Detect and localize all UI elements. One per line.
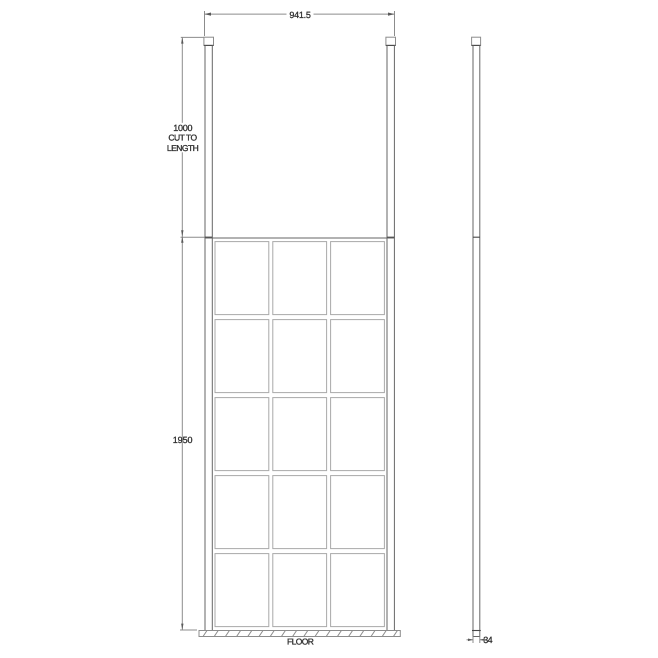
- svg-text:1000: 1000: [173, 123, 192, 133]
- svg-text:941.5: 941.5: [289, 10, 311, 20]
- svg-text:1950: 1950: [173, 435, 193, 445]
- svg-text:FLOOR: FLOOR: [287, 636, 314, 646]
- svg-text:34: 34: [483, 635, 492, 645]
- svg-text:LENGTH: LENGTH: [167, 143, 199, 153]
- svg-text:CUT TO: CUT TO: [168, 133, 197, 143]
